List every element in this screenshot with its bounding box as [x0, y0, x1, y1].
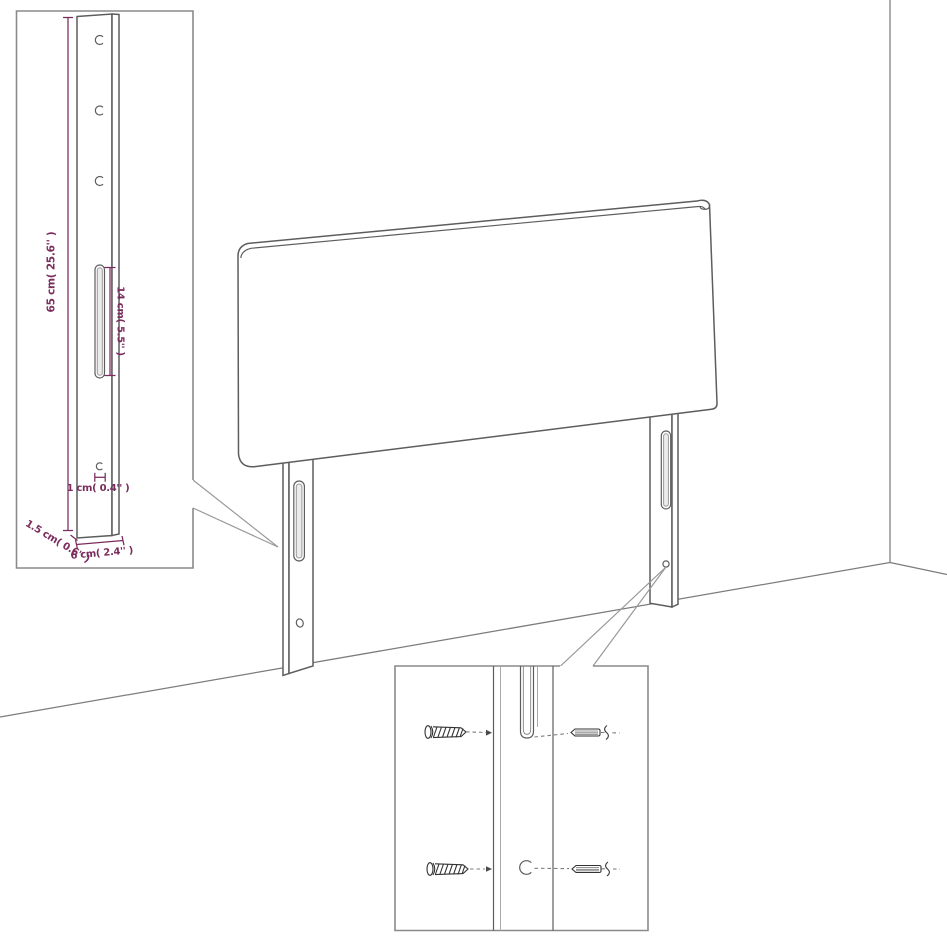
- mounting-leader-line-2: [593, 567, 666, 666]
- leg-right-side-face: [672, 413, 678, 607]
- mounting-inset: [395, 567, 666, 931]
- headboard-assembly-diagram: 65 cm( 25.6'' ) 14 cm( 5.5'' ) 1 cm( 0.4…: [0, 0, 947, 947]
- leg-left-side-face: [283, 461, 289, 676]
- mounting-inset-frame: [395, 666, 648, 931]
- headboard-panel: [238, 200, 717, 466]
- floor-line-right: [890, 563, 947, 575]
- dimension-hole-label: 1 cm( 0.4'' ): [67, 483, 130, 494]
- bracket-slot-inner: [97, 268, 102, 375]
- headboard-leg-left: [283, 458, 313, 675]
- bracket-side-face: [112, 14, 119, 536]
- product-diagram-canvas: 65 cm( 25.6'' ) 14 cm( 5.5'' ) 1 cm( 0.4…: [0, 0, 947, 947]
- leg-right-slot-inner: [664, 434, 669, 506]
- dimension-height-label: 65 cm( 25.6'' ): [46, 232, 58, 313]
- headboard: [238, 200, 717, 675]
- leg-left-slot-inner: [296, 484, 302, 558]
- dimension-slot-length-label: 14 cm( 5.5'' ): [115, 286, 126, 356]
